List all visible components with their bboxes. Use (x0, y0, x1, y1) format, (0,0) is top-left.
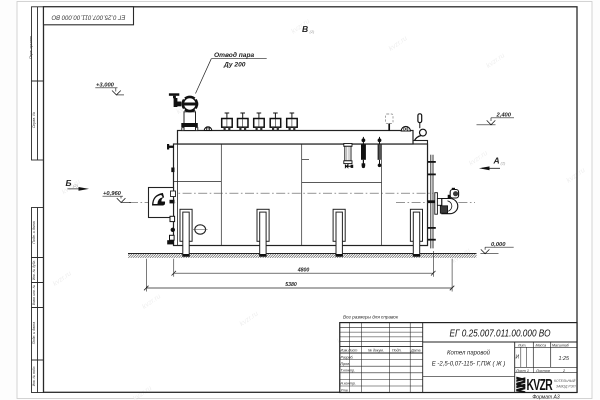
svg-text:В: В (302, 24, 308, 34)
svg-text:Н.контр.: Н.контр. (341, 382, 356, 386)
svg-text:ЕГ 0.25.007.011.00.000 ВО: ЕГ 0.25.007.011.00.000 ВО (51, 14, 125, 20)
svg-text:Инв. № подл.: Инв. № подл. (32, 366, 36, 387)
svg-text:Подп. и дата: Подп. и дата (32, 322, 36, 345)
svg-text:Взам. инв. №: Взам. инв. № (32, 284, 36, 305)
svg-text:ЕГ 0.25.007.011.00.000 ВО: ЕГ 0.25.007.011.00.000 ВО (450, 328, 551, 339)
svg-text:5380: 5380 (285, 282, 297, 288)
svg-text:Масса: Масса (536, 343, 547, 347)
svg-text:ЗАВОД РЭП: ЗАВОД РЭП (556, 385, 576, 389)
svg-text:Масштаб: Масштаб (552, 343, 570, 347)
svg-text:KVZR: KVZR (527, 377, 553, 394)
svg-text:И: И (516, 355, 520, 361)
svg-text:Е -2,5-0,07-115- Г,ПЖ ( Ж ): Е -2,5-0,07-115- Г,ПЖ ( Ж ) (432, 362, 506, 368)
svg-text:Перв. примен.: Перв. примен. (29, 35, 33, 59)
svg-text:Подп. и дата: Подп. и дата (32, 221, 36, 244)
svg-text:Т.контр.: Т.контр. (341, 369, 356, 373)
svg-text:Справ. №: Справ. № (32, 112, 36, 128)
svg-text:Листов: Листов (535, 369, 550, 373)
svg-text:(2): (2) (310, 29, 316, 34)
svg-text:А: А (493, 156, 500, 166)
svg-text:Пров.: Пров. (341, 362, 350, 366)
svg-text:Ду 200: Ду 200 (223, 62, 246, 69)
svg-text:Отвод пара: Отвод пара (214, 51, 254, 59)
svg-text:Котел паровой: Котел паровой (447, 350, 491, 357)
svg-text:Дата: Дата (410, 349, 420, 353)
svg-text:Утв.: Утв. (341, 388, 349, 392)
svg-text:Лист 1: Лист 1 (515, 369, 529, 373)
svg-text:Лит.: Лит. (517, 343, 526, 347)
svg-text:Разраб.: Разраб. (341, 355, 354, 359)
svg-text:1:25: 1:25 (559, 356, 570, 362)
svg-text:Инв. № дубл.: Инв. № дубл. (32, 260, 36, 280)
svg-text:КОТЕЛЬНЫЙ: КОТЕЛЬНЫЙ (554, 379, 576, 383)
svg-text:Изм.Лист: Изм.Лист (341, 349, 358, 353)
svg-text:Формат А3: Формат А3 (532, 395, 560, 400)
svg-text:Все размеры для справок: Все размеры для справок (343, 314, 399, 319)
svg-text:Подп.: Подп. (392, 349, 402, 353)
svg-text:(2): (2) (501, 161, 507, 166)
svg-text:4800: 4800 (297, 267, 310, 273)
svg-text:(2): (2) (73, 183, 79, 188)
svg-text:№ докум.: № докум. (368, 349, 384, 353)
svg-text:Б: Б (66, 178, 72, 188)
